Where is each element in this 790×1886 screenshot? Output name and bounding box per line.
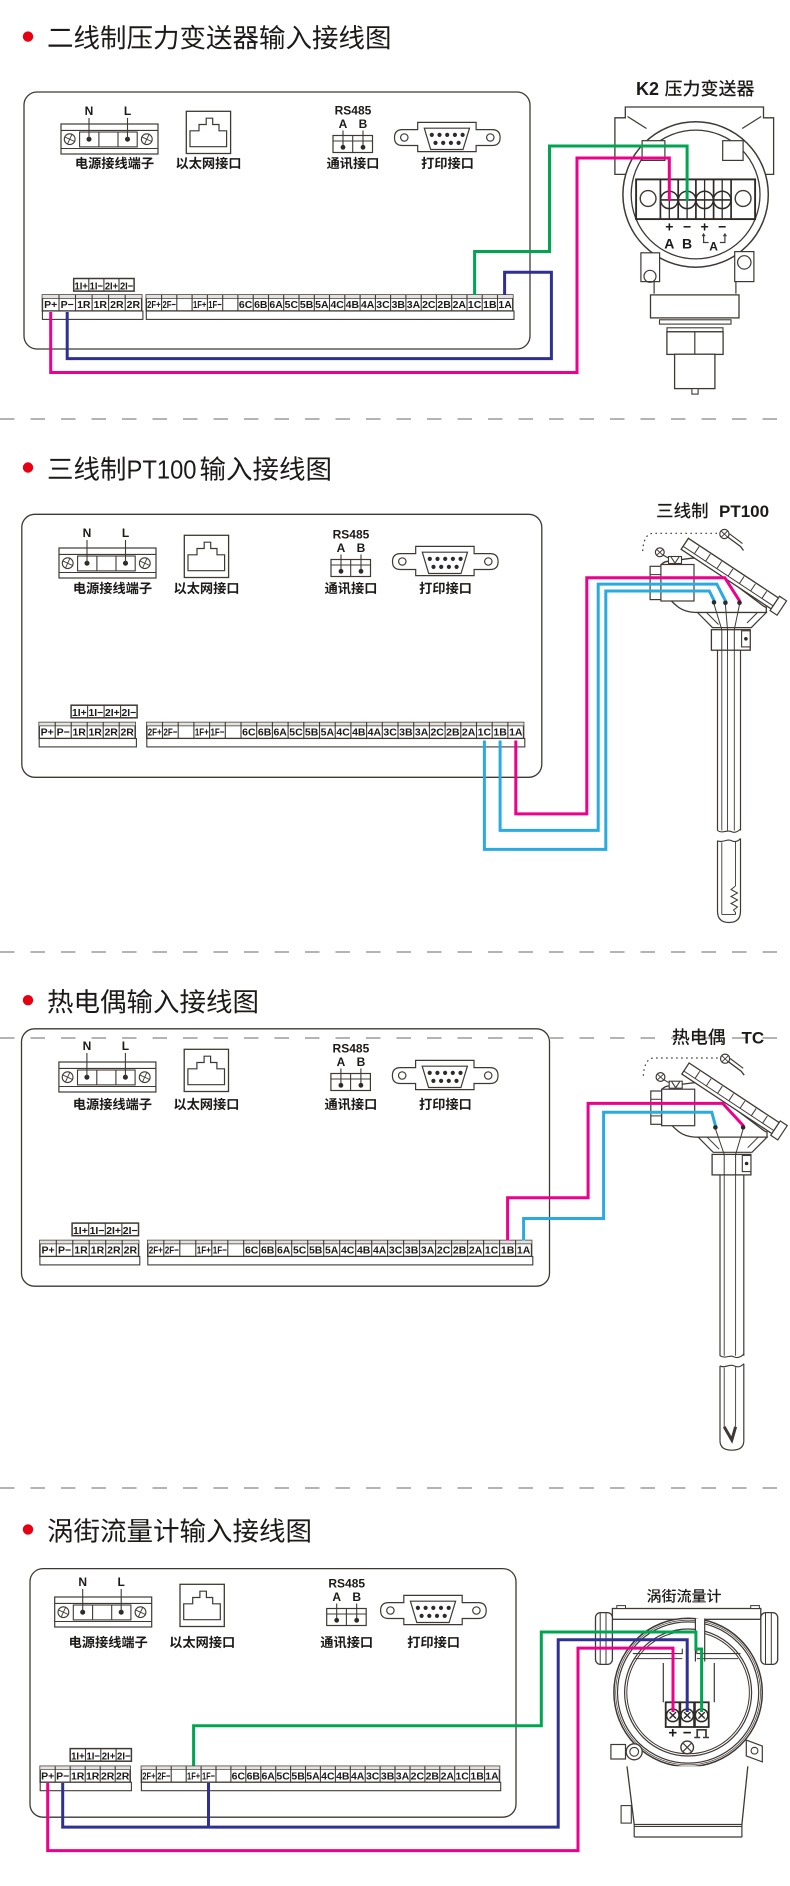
svg-text:2R: 2R — [110, 299, 124, 311]
svg-text:4C: 4C — [336, 727, 350, 739]
svg-text:−: − — [683, 1725, 692, 1742]
svg-text:2I+: 2I+ — [105, 707, 120, 719]
svg-text:1I+: 1I+ — [75, 281, 88, 293]
svg-text:6A: 6A — [277, 1245, 291, 1257]
svg-text:6B: 6B — [261, 1245, 275, 1257]
svg-text:RS485: RS485 — [335, 104, 372, 118]
svg-text:4C: 4C — [321, 1771, 335, 1783]
svg-text:N: N — [83, 1039, 92, 1053]
svg-text:5C: 5C — [276, 1771, 290, 1783]
svg-text:L: L — [118, 1575, 125, 1589]
svg-text:4B: 4B — [357, 1245, 371, 1257]
svg-text:6C: 6C — [232, 1771, 246, 1783]
svg-text:2F−: 2F− — [157, 1771, 170, 1783]
svg-text:2A: 2A — [453, 299, 467, 311]
svg-text:1F−: 1F− — [202, 1771, 215, 1783]
svg-text:2A: 2A — [469, 1245, 483, 1257]
svg-text:2C: 2C — [430, 727, 444, 739]
svg-text:2F−: 2F− — [165, 1245, 179, 1257]
svg-text:PT100: PT100 — [127, 455, 197, 485]
svg-text:5C: 5C — [289, 727, 303, 739]
svg-text:+: + — [668, 1725, 677, 1742]
svg-text:1I−: 1I− — [88, 707, 103, 719]
svg-text:2I−: 2I− — [123, 1225, 138, 1237]
svg-text:B: B — [357, 1055, 366, 1069]
svg-text:1C: 1C — [468, 299, 482, 311]
svg-text:A: A — [339, 117, 348, 131]
svg-text:2A: 2A — [441, 1771, 455, 1783]
svg-text:2F−: 2F− — [163, 727, 177, 739]
svg-text:2I−: 2I− — [121, 707, 136, 719]
svg-text:5B: 5B — [309, 1245, 323, 1257]
svg-text:3B: 3B — [392, 299, 406, 311]
svg-text:1I+: 1I+ — [71, 1751, 85, 1763]
svg-text:PT100: PT100 — [719, 502, 769, 521]
svg-text:1R: 1R — [94, 299, 108, 311]
svg-text:3C: 3C — [383, 727, 397, 739]
svg-text:P−: P− — [58, 1245, 71, 1257]
svg-text:N: N — [78, 1575, 87, 1589]
svg-text:3C: 3C — [376, 299, 390, 311]
svg-text:RS485: RS485 — [333, 1042, 370, 1056]
svg-text:4A: 4A — [361, 299, 375, 311]
svg-text:B: B — [357, 541, 366, 555]
svg-text:2R: 2R — [104, 727, 118, 739]
svg-text:1A: 1A — [498, 299, 512, 311]
svg-text:TC: TC — [742, 1029, 765, 1048]
svg-text:1F+: 1F+ — [193, 299, 206, 311]
svg-text:1R: 1R — [86, 1771, 100, 1783]
svg-text:1F+: 1F+ — [197, 1245, 211, 1257]
svg-text:P+: P+ — [41, 727, 54, 739]
svg-text:5C: 5C — [293, 1245, 307, 1257]
svg-text:P−: P− — [57, 727, 70, 739]
svg-text:1F+: 1F+ — [187, 1771, 200, 1783]
svg-text:1F−: 1F− — [213, 1245, 227, 1257]
svg-text:1A: 1A — [517, 1245, 531, 1257]
svg-text:2R: 2R — [120, 727, 134, 739]
svg-text:A: A — [337, 541, 346, 555]
svg-text:1R: 1R — [88, 727, 102, 739]
svg-text:2F+: 2F+ — [148, 727, 162, 739]
svg-text:L: L — [122, 1039, 129, 1053]
svg-text:L: L — [124, 104, 131, 118]
svg-text:1R: 1R — [77, 299, 91, 311]
svg-text:4C: 4C — [341, 1245, 355, 1257]
svg-text:2F+: 2F+ — [147, 299, 160, 311]
svg-text:A: A — [337, 1055, 346, 1069]
svg-text:3C: 3C — [389, 1245, 403, 1257]
svg-text:2C: 2C — [437, 1245, 451, 1257]
svg-text:4B: 4B — [352, 727, 366, 739]
svg-text:2B: 2B — [453, 1245, 467, 1257]
svg-text:3A: 3A — [407, 299, 421, 311]
svg-text:3B: 3B — [381, 1771, 395, 1783]
svg-text:RS485: RS485 — [328, 1577, 365, 1591]
svg-text:1C: 1C — [455, 1771, 469, 1783]
svg-text:6B: 6B — [247, 1771, 261, 1783]
svg-text:2C: 2C — [422, 299, 436, 311]
svg-text:3A: 3A — [415, 727, 429, 739]
svg-text:4A: 4A — [368, 727, 382, 739]
svg-text:1A: 1A — [509, 727, 523, 739]
svg-text:N: N — [83, 526, 92, 540]
svg-text:2R: 2R — [101, 1771, 115, 1783]
svg-text:6C: 6C — [242, 727, 256, 739]
svg-text:1I+: 1I+ — [72, 707, 87, 719]
svg-text:5B: 5B — [305, 727, 319, 739]
svg-text:2F+: 2F+ — [149, 1245, 163, 1257]
svg-text:1I−: 1I− — [90, 1225, 105, 1237]
svg-text:1F−: 1F− — [208, 299, 221, 311]
svg-text:1R: 1R — [71, 1771, 85, 1783]
svg-text:−: − — [683, 219, 691, 235]
svg-text:1I+: 1I+ — [73, 1225, 88, 1237]
svg-text:5C: 5C — [285, 299, 299, 311]
svg-text:2R: 2R — [107, 1245, 121, 1257]
svg-text:1I−: 1I− — [86, 1751, 100, 1763]
svg-text:3A: 3A — [396, 1771, 410, 1783]
svg-text:+: + — [665, 219, 673, 235]
svg-text:2I+: 2I+ — [102, 1751, 116, 1763]
svg-text:2B: 2B — [437, 299, 451, 311]
svg-text:1B: 1B — [501, 1245, 515, 1257]
svg-text:2I+: 2I+ — [106, 1225, 121, 1237]
svg-text:6B: 6B — [258, 727, 272, 739]
svg-text:1B: 1B — [483, 299, 497, 311]
svg-text:2I−: 2I− — [117, 1751, 131, 1763]
svg-text:1I−: 1I− — [90, 281, 103, 293]
svg-text:A: A — [709, 240, 718, 254]
svg-text:3B: 3B — [405, 1245, 419, 1257]
svg-text:P−: P− — [61, 299, 74, 311]
svg-text:A: A — [332, 1590, 341, 1604]
svg-text:4B: 4B — [346, 299, 360, 311]
svg-text:1F−: 1F− — [210, 727, 224, 739]
svg-text:5A: 5A — [325, 1245, 339, 1257]
svg-text:2B: 2B — [426, 1771, 440, 1783]
svg-text:P+: P+ — [42, 1245, 55, 1257]
svg-text:1B: 1B — [493, 727, 507, 739]
svg-text:6C: 6C — [245, 1245, 259, 1257]
svg-text:L: L — [122, 526, 129, 540]
svg-text:5A: 5A — [315, 299, 329, 311]
svg-text:1F+: 1F+ — [195, 727, 209, 739]
svg-text:3A: 3A — [421, 1245, 435, 1257]
svg-text:2A: 2A — [462, 727, 476, 739]
svg-text:4A: 4A — [351, 1771, 365, 1783]
svg-text:5B: 5B — [300, 299, 314, 311]
svg-text:K2: K2 — [636, 79, 659, 99]
svg-text:6C: 6C — [239, 299, 253, 311]
svg-text:1R: 1R — [91, 1245, 105, 1257]
svg-text:6A: 6A — [269, 299, 283, 311]
svg-text:6B: 6B — [254, 299, 268, 311]
svg-text:1R: 1R — [74, 1245, 88, 1257]
svg-text:P−: P− — [56, 1771, 69, 1783]
svg-text:RS485: RS485 — [333, 528, 370, 542]
svg-text:P+: P+ — [41, 1771, 54, 1783]
svg-text:2R: 2R — [116, 1771, 130, 1783]
svg-text:6A: 6A — [261, 1771, 275, 1783]
svg-text:1A: 1A — [485, 1771, 499, 1783]
svg-text:N: N — [85, 104, 94, 118]
svg-text:2F+: 2F+ — [142, 1771, 155, 1783]
svg-text:1R: 1R — [72, 727, 86, 739]
svg-text:4A: 4A — [373, 1245, 387, 1257]
svg-text:B: B — [359, 117, 368, 131]
svg-text:B: B — [682, 236, 692, 252]
svg-text:B: B — [352, 1590, 361, 1604]
svg-text:5A: 5A — [306, 1771, 320, 1783]
svg-text:4C: 4C — [330, 299, 344, 311]
svg-text:2R: 2R — [127, 299, 141, 311]
svg-text:1C: 1C — [478, 727, 492, 739]
svg-text:3C: 3C — [366, 1771, 380, 1783]
svg-text:−: − — [718, 219, 726, 235]
svg-text:+: + — [701, 219, 709, 235]
svg-text:2I−: 2I− — [120, 281, 133, 293]
svg-text:5A: 5A — [321, 727, 335, 739]
svg-text:5B: 5B — [291, 1771, 305, 1783]
svg-text:2R: 2R — [124, 1245, 138, 1257]
svg-text:P+: P+ — [44, 299, 57, 311]
svg-text:6A: 6A — [273, 727, 287, 739]
svg-text:2C: 2C — [411, 1771, 425, 1783]
svg-text:2F−: 2F− — [162, 299, 175, 311]
svg-text:A: A — [664, 236, 674, 252]
svg-text:4B: 4B — [336, 1771, 350, 1783]
svg-text:3B: 3B — [399, 727, 413, 739]
svg-text:1C: 1C — [485, 1245, 499, 1257]
svg-text:1B: 1B — [470, 1771, 484, 1783]
svg-text:2I+: 2I+ — [105, 281, 118, 293]
svg-text:2B: 2B — [446, 727, 460, 739]
